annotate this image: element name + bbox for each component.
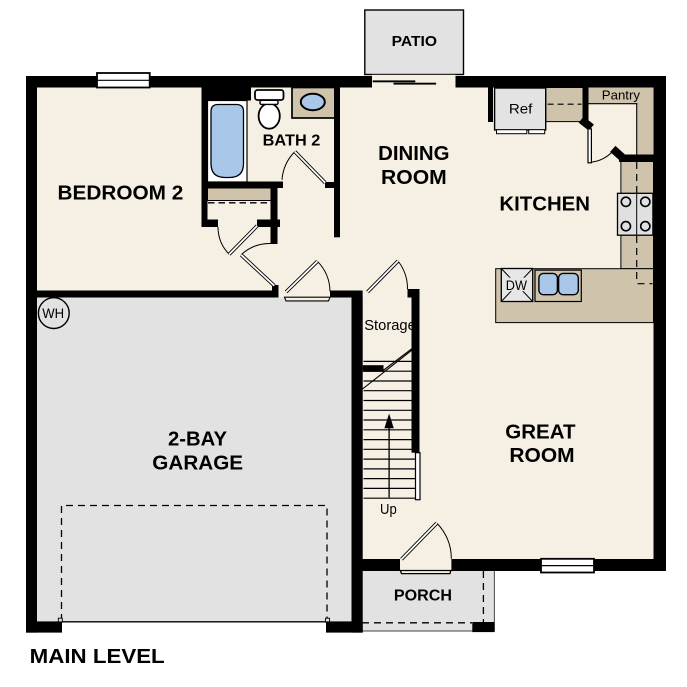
svg-text:DW: DW [506,277,528,293]
svg-text:DINING: DINING [378,143,449,165]
svg-text:WH: WH [42,305,64,321]
svg-text:PORCH: PORCH [394,588,452,605]
svg-text:PATIO: PATIO [392,33,438,50]
svg-text:Storage: Storage [364,317,416,334]
svg-text:GARAGE: GARAGE [152,453,243,475]
svg-text:Pantry: Pantry [602,88,641,103]
svg-text:BATH 2: BATH 2 [263,133,321,150]
svg-text:KITCHEN: KITCHEN [499,194,590,216]
svg-text:Up: Up [380,501,397,518]
svg-text:MAIN LEVEL: MAIN LEVEL [30,646,165,668]
svg-text:ROOM: ROOM [509,445,574,467]
svg-text:Ref: Ref [509,100,533,116]
svg-text:BEDROOM 2: BEDROOM 2 [58,183,184,205]
svg-text:2-BAY: 2-BAY [168,428,228,450]
svg-text:ROOM: ROOM [381,167,447,189]
svg-text:GREAT: GREAT [505,421,575,443]
